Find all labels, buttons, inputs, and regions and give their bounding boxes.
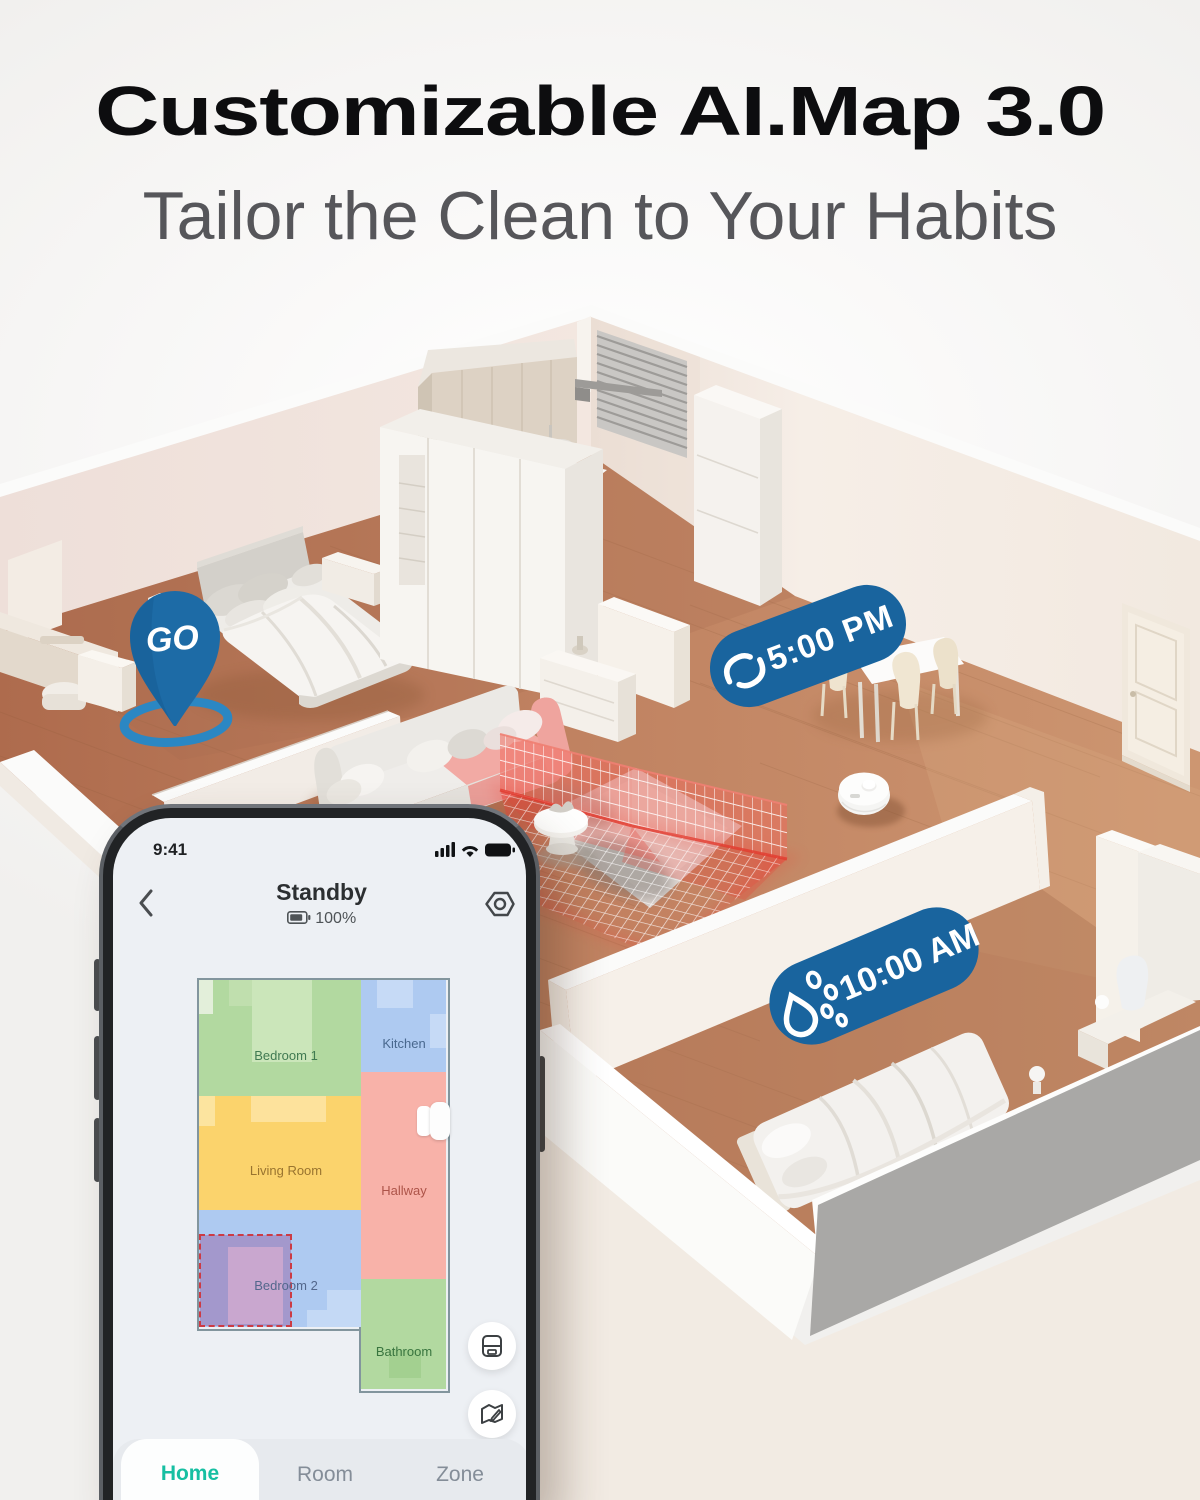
svg-text:GO: GO: [145, 618, 200, 660]
